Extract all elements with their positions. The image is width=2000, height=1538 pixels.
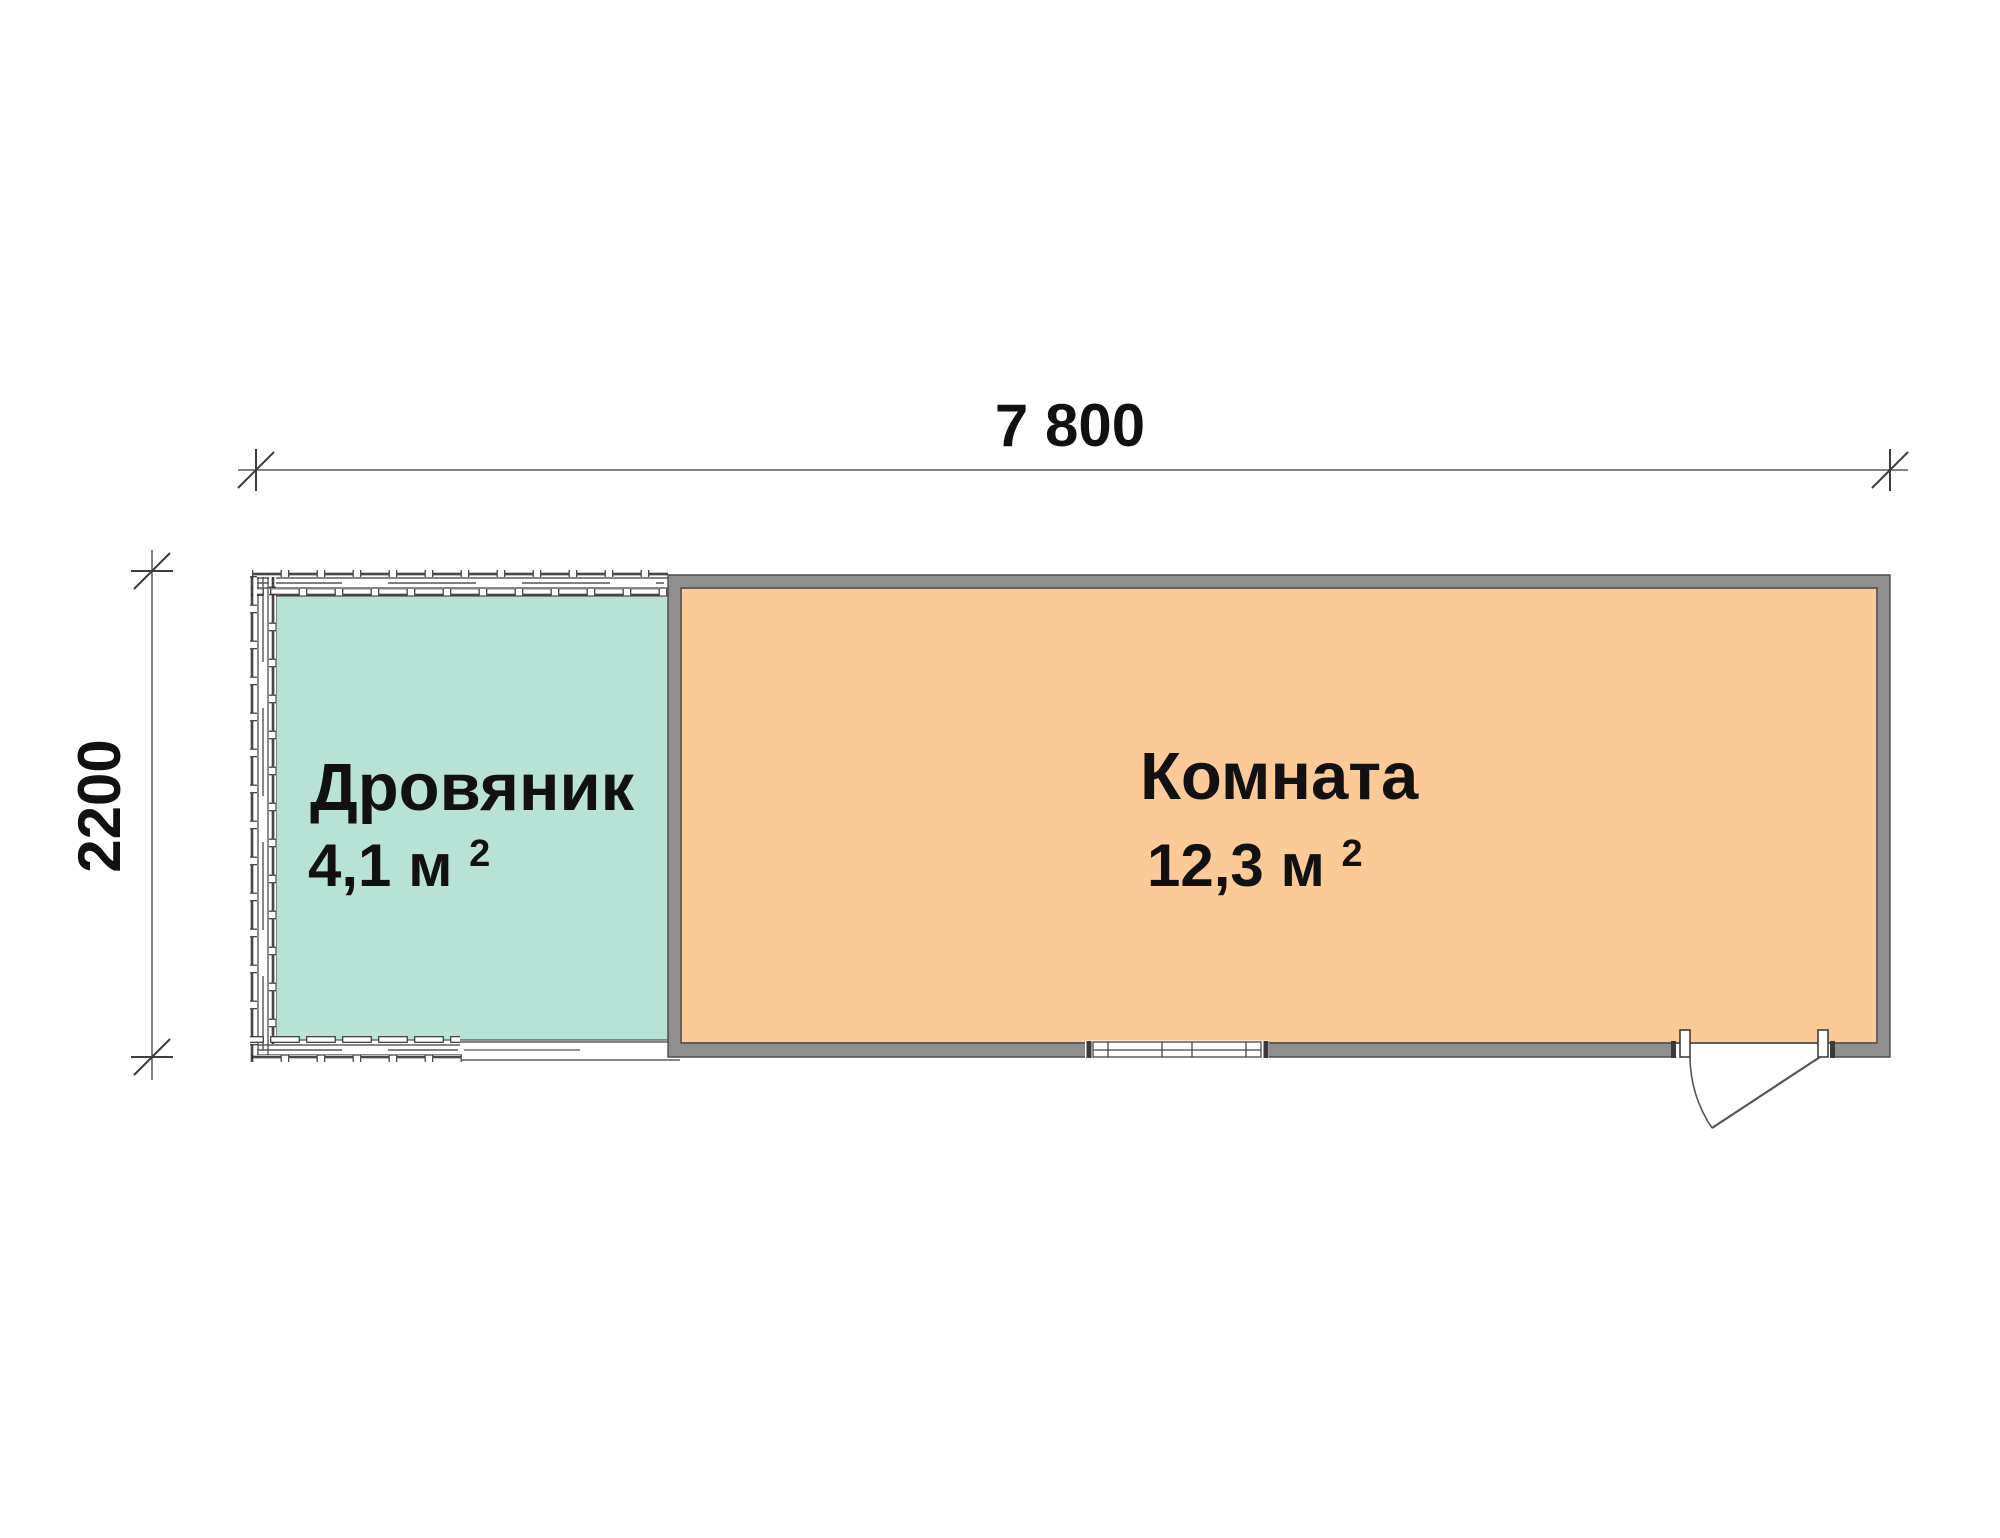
door-opening — [1676, 1044, 1830, 1060]
main-room-floor — [681, 588, 1877, 1043]
woodshed-plank-row-top-outer — [250, 570, 668, 577]
top-dimension-label: 7 800 — [995, 392, 1145, 459]
main-room-area-value: 12,3 м — [1147, 832, 1325, 899]
woodshed-plank-row-left-inner — [269, 577, 276, 1044]
door-wall-cap-left — [1671, 1041, 1676, 1058]
woodshed-area-value: 4,1 м — [308, 832, 452, 899]
woodshed-plank-row-top-inner — [250, 589, 668, 596]
woodshed-name-label: Дровяник — [310, 750, 635, 825]
door — [1671, 1030, 1835, 1128]
door-wall-cap-right — [1830, 1041, 1835, 1058]
main-room-name-label: Комната — [1140, 739, 1419, 814]
woodshed-plank-row-left-outer — [250, 570, 257, 1062]
woodshed-area-superscript: 2 — [469, 833, 490, 875]
main-room-area-label: 12,3 м 2 — [1147, 832, 1363, 899]
top-dimension: 7 800 — [238, 392, 1908, 491]
main-room-area-superscript: 2 — [1342, 833, 1363, 875]
door-swing-arc — [1690, 1057, 1712, 1128]
woodshed-area-label: 4,1 м 2 — [308, 832, 490, 899]
door-leaf — [1712, 1057, 1820, 1128]
window — [1085, 1041, 1269, 1060]
woodshed-plank-row-bottom-inner — [250, 1036, 460, 1043]
window-jamb-left — [1087, 1041, 1092, 1058]
floor-plan-canvas: 7 800 2200 — [0, 0, 2000, 1538]
left-dimension: 2200 — [66, 550, 173, 1080]
door-jamb-right — [1818, 1030, 1828, 1057]
main-room — [668, 575, 1890, 1057]
woodshed-plank-row-bottom-outer — [250, 1055, 462, 1062]
window-jamb-right — [1264, 1041, 1269, 1058]
left-dimension-label: 2200 — [66, 739, 133, 872]
door-jamb-left — [1680, 1030, 1690, 1057]
